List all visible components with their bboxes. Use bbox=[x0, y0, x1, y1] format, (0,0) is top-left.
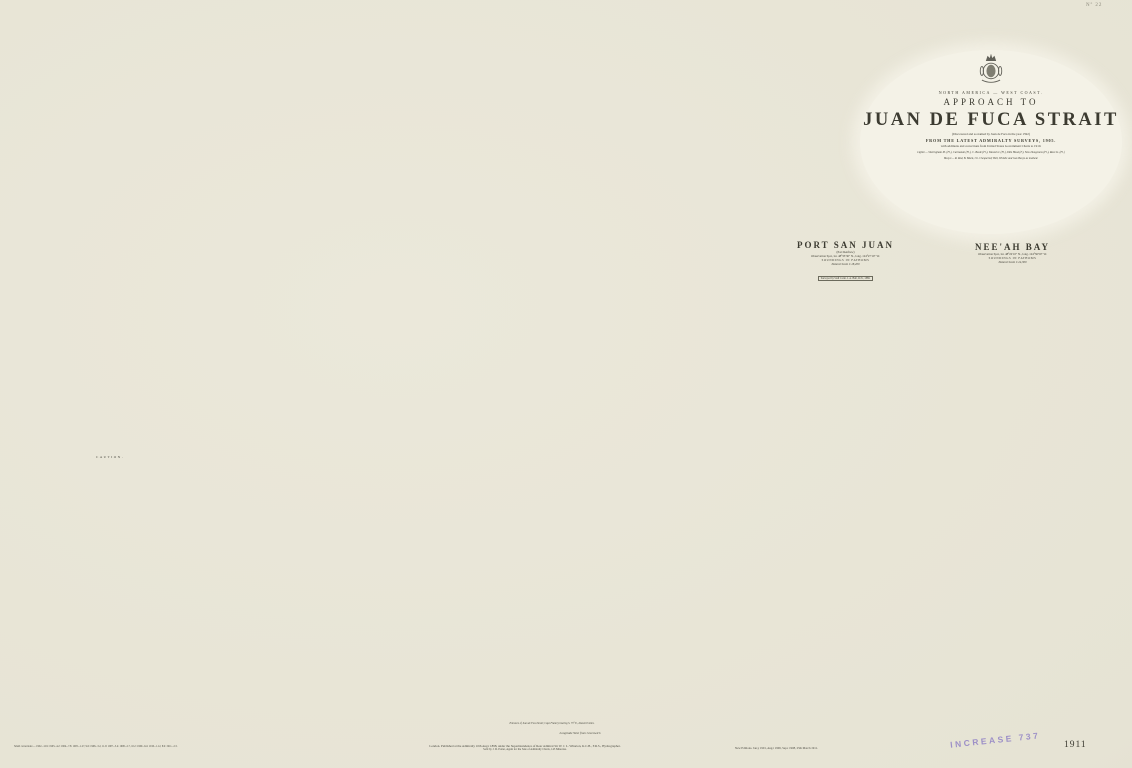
chart-number: 1911 bbox=[1064, 740, 1087, 750]
inset-title-text: NEE'AH BAY bbox=[945, 242, 1080, 252]
chart-buoys-note: Buoys:— R. Red, B. Black, Ch. Chequered;… bbox=[862, 157, 1120, 160]
title-cartouche: NORTH AMERICA — WEST COAST. APPROACH TO … bbox=[862, 54, 1120, 164]
small-corrections-note: Small corrections:— 1902.–12.9: 1903.–4.… bbox=[14, 745, 324, 748]
coastal-profile-caption: Entrance of Juan de Fuca Strait; Cape Fl… bbox=[447, 722, 657, 725]
caution-note: CAUTION. bbox=[60, 455, 160, 459]
chart-region-line: NORTH AMERICA — WEST COAST. bbox=[862, 90, 1120, 95]
publication-imprint: London. Published at the Admiralty 10th … bbox=[330, 744, 720, 751]
chart-additions-line: with additions and corrections from Unit… bbox=[862, 144, 1120, 148]
corner-number: Nº 22 bbox=[1086, 3, 1102, 8]
longitude-axis-label: Longitude West from Greenwich bbox=[500, 731, 660, 735]
inset-neeah-bay-title: NEE'AH BAY Observation Spot, lat. 48°22′… bbox=[945, 242, 1080, 264]
chart-approach-line: APPROACH TO bbox=[862, 97, 1120, 108]
chart-lights-note: Lights:— Sheringham Pt. (Fl.), Carmanah … bbox=[862, 151, 1120, 154]
new-editions-note: New Editions. Jan.y 1901, Aug.t 1906, Se… bbox=[735, 746, 935, 750]
chart-title: JUAN DE FUCA STRAIT bbox=[862, 109, 1120, 132]
royal-crest-icon bbox=[862, 54, 1120, 90]
chart-title-bracket: (Discovered and so named by Juan de Fuca… bbox=[862, 132, 1120, 136]
inset-port-san-juan-title: PORT SAN JUAN (Port Renfrew) Observation… bbox=[783, 240, 908, 284]
nautical-chart-scan: NORTH AMERICA — WEST COAST. APPROACH TO … bbox=[0, 0, 1132, 768]
inset-title-text: PORT SAN JUAN bbox=[783, 240, 908, 250]
